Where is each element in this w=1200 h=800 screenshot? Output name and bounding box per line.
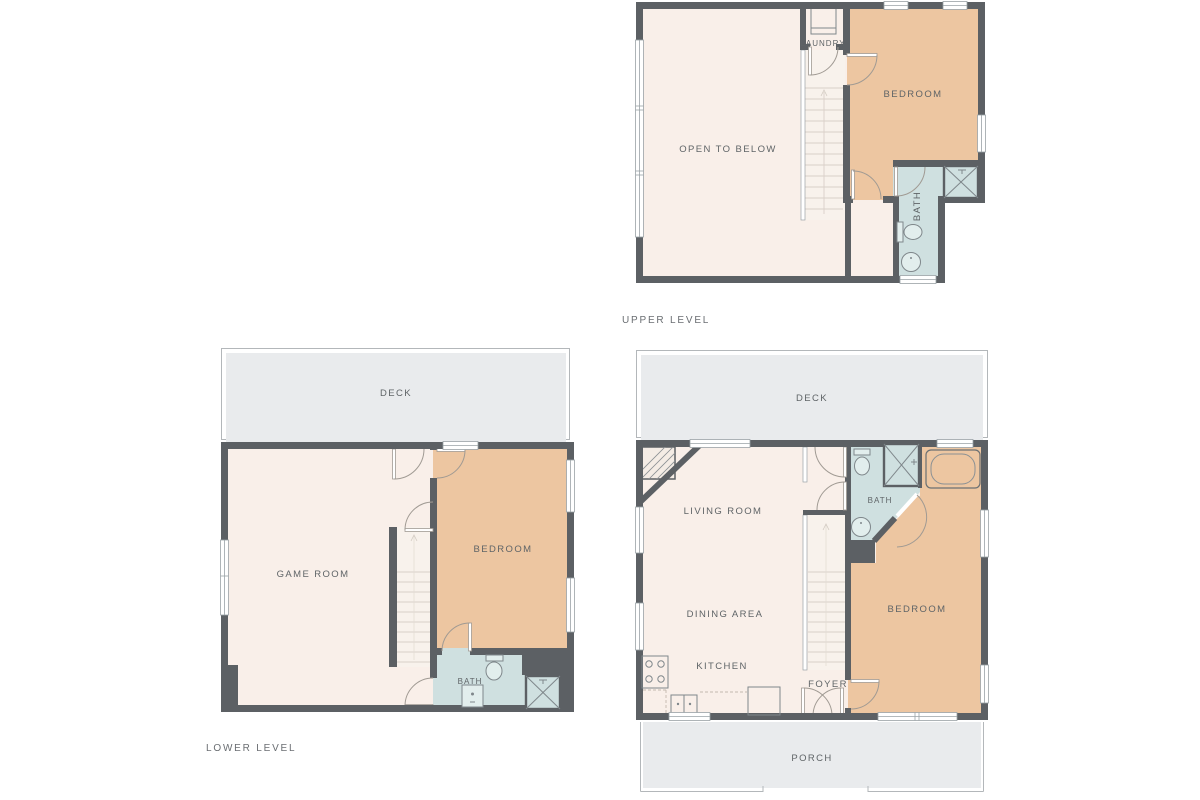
room-label-game-room: GAME ROOM [277,569,350,580]
stairwell-upper [802,50,845,220]
stairs-lower [389,527,430,667]
wall [845,203,851,283]
stairwell-main [808,512,845,670]
room-label-bath-main: BATH [868,496,893,505]
sink-icon-upper [902,253,921,272]
wall [430,478,437,655]
sink-icon-lower [462,685,483,707]
floorplan-canvas: OPEN TO BELOW LAUNDRY BEDROOM BATH UPPER… [0,0,1200,800]
floorplan-page: OPEN TO BELOW LAUNDRY BEDROOM BATH UPPER… [0,0,1200,800]
room-label-bath-lower: BATH [458,677,483,686]
lower-level-plan: DECK GAME ROOM BEDROOM BATH LOWER LEVEL [206,349,575,755]
wall [430,648,442,655]
stair-rail-main [803,515,807,670]
wall [843,85,850,203]
toilet-icon-main [854,449,870,475]
toilet-icon-lower [486,655,503,680]
room-label-deck-main: DECK [796,393,828,404]
room-label-living-room: LIVING ROOM [684,506,763,517]
wall [883,196,893,203]
wall [470,648,574,655]
room-label-bedroom-lower: BEDROOM [474,544,533,555]
room-label-dining-area: DINING AREA [687,609,764,620]
bathtub-icon [926,450,980,488]
shower-icon-upper [944,166,978,198]
room-label-foyer: FOYER [808,679,848,690]
room-label-bedroom-upper: BEDROOM [884,89,943,100]
level-caption-lower: LOWER LEVEL [206,743,296,754]
wall [803,510,848,515]
main-level-plan: DECK LIVING ROOM DINING AREA KITCHEN FOY… [628,351,989,792]
shower-icon-lower [526,676,560,709]
shower-icon-main [884,444,919,486]
wall [845,540,875,563]
room-label-bedroom-main: BEDROOM [888,604,947,615]
room-label-porch: PORCH [791,753,832,764]
upper-level-plan: OPEN TO BELOW LAUNDRY BEDROOM BATH UPPER… [622,2,986,327]
level-caption-upper: UPPER LEVEL [622,315,710,326]
wall [389,527,397,667]
sink-icon-main [852,518,871,537]
room-label-laundry: LAUNDRY [800,39,845,48]
room-label-kitchen: KITCHEN [696,661,748,672]
stair-rail-upper [801,50,805,220]
hall-partition [803,447,807,482]
room-label-open-to-below: OPEN TO BELOW [679,144,777,155]
wall [845,563,851,680]
room-label-bath-upper: BATH [912,191,923,221]
wall [430,655,437,678]
room-label-deck-lower: DECK [380,388,412,399]
